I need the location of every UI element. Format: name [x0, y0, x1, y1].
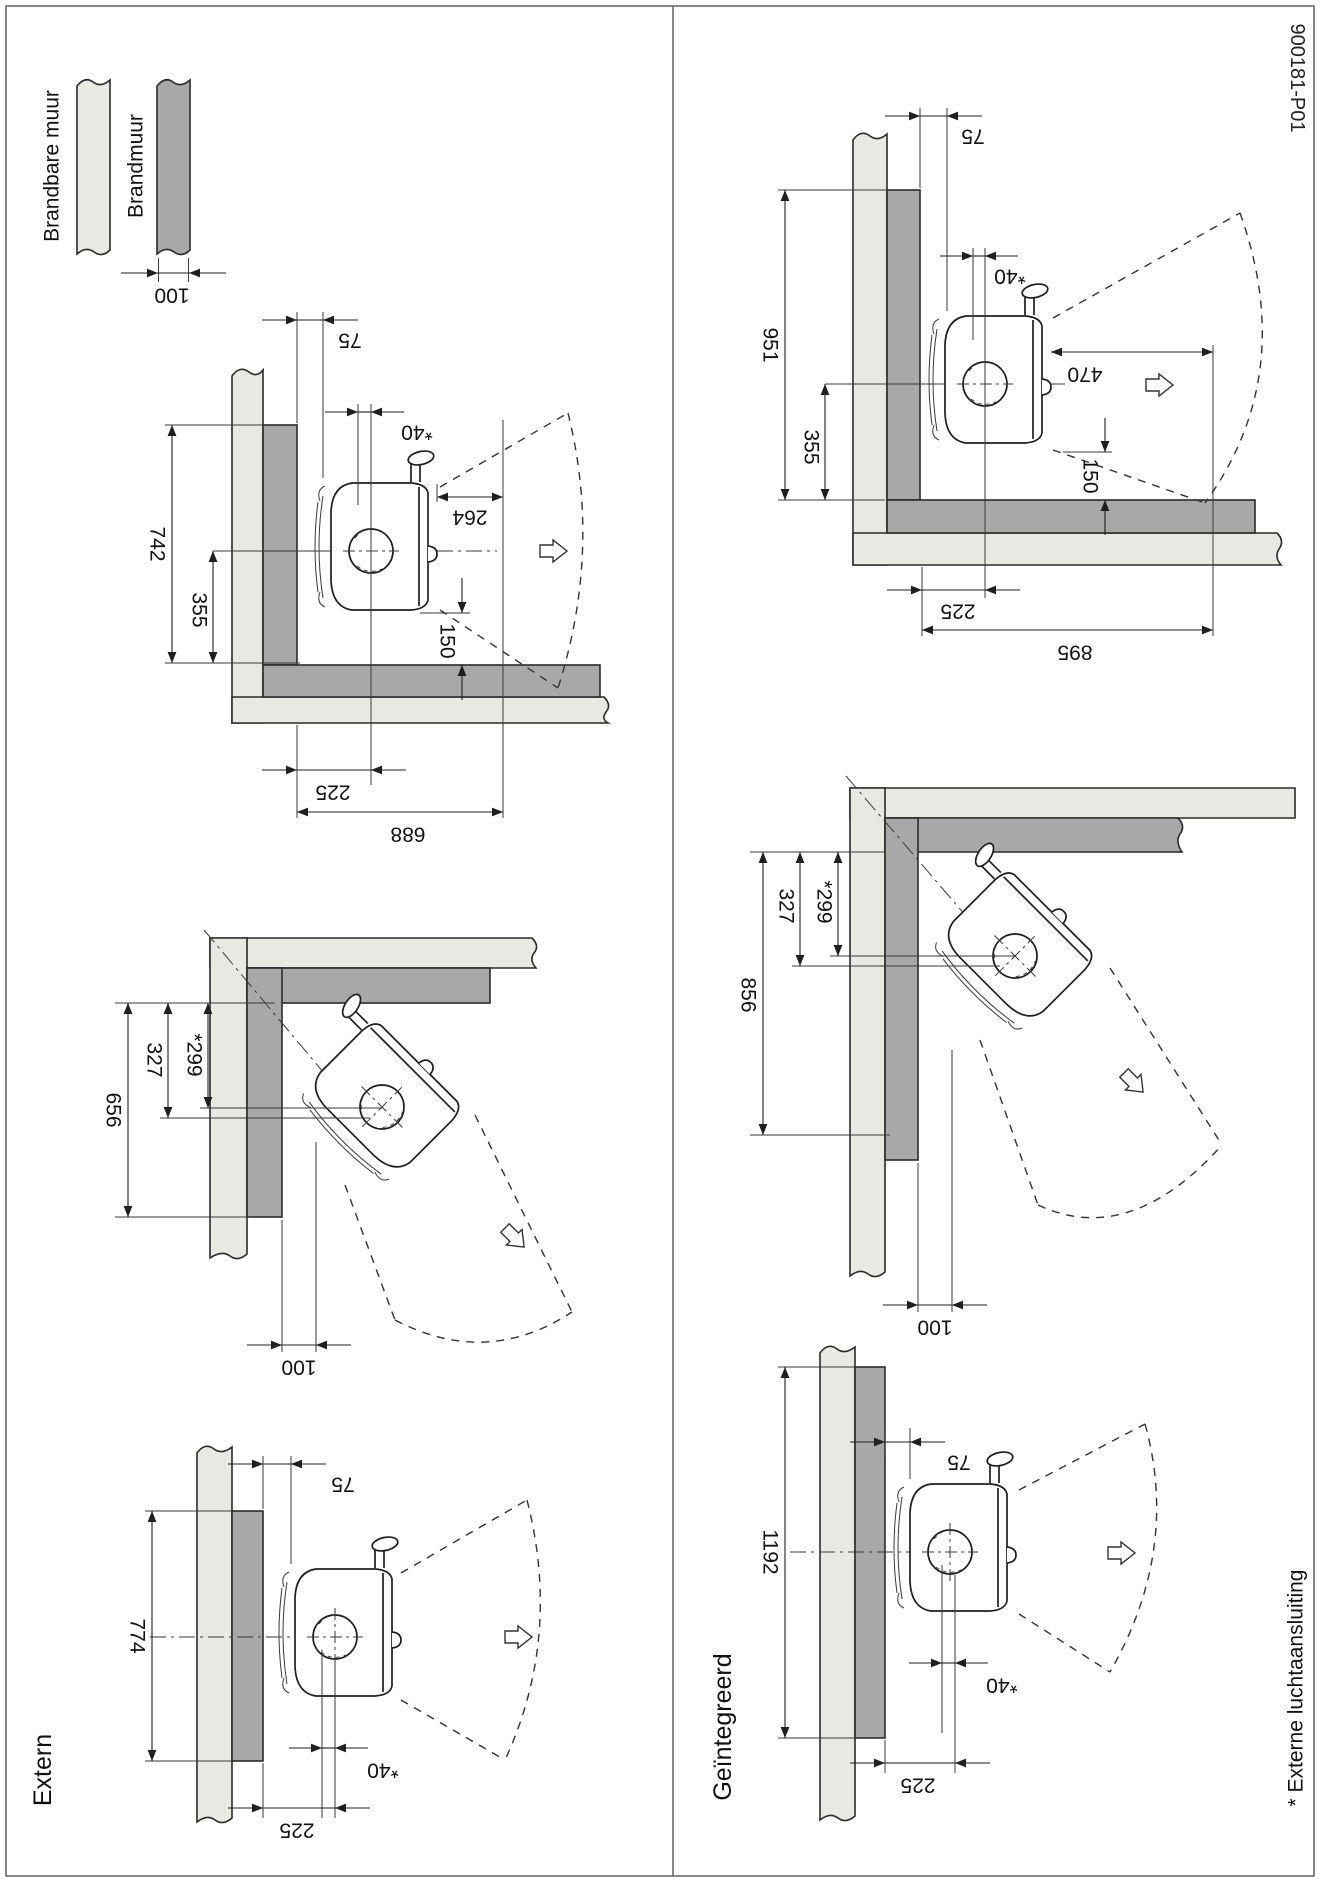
stove-top-view: [315, 449, 437, 610]
dim-height-center: 355: [800, 429, 823, 464]
dim-bottom-clearance: 150: [436, 623, 459, 658]
dim-firewall-height: 1192: [759, 1529, 782, 1574]
diagram-geintegreerd-diagonal: 856 327 *299 100: [737, 776, 1296, 1339]
radiation-direction-arrow-icon: [1108, 1542, 1135, 1564]
dim-wall-gap: 100: [281, 1356, 316, 1379]
stove-top-view: [903, 837, 1103, 1037]
combustible-wall: [850, 788, 1295, 818]
combustible-wall: [853, 533, 1282, 565]
combustible-wall: [232, 697, 609, 723]
diagram-geintegreerd-flat: 1192 75 *40 225: [759, 1346, 1157, 1820]
dim-flue-offset: *40: [367, 1759, 399, 1782]
dim-depth-upper: 327: [143, 1042, 166, 1077]
combustible-wall: [210, 938, 537, 968]
firewall: [885, 818, 1183, 852]
dim-side-distance: 225: [315, 781, 350, 804]
firewall: [885, 818, 918, 1160]
dim-depth-upper: 327: [775, 888, 798, 923]
dim-flue-offset: *40: [401, 421, 433, 444]
dim-depth-inner: *299: [183, 1033, 206, 1076]
dim-wall-gap: 100: [917, 1316, 952, 1339]
firewall: [263, 425, 297, 665]
firewall: [247, 968, 282, 1217]
combustible-wall: [232, 369, 263, 723]
radiation-direction-arrow-icon: [505, 1626, 532, 1648]
dim-flue-offset: *40: [986, 1674, 1018, 1697]
footnote-external-air: * Externe luchtaansluiting: [1285, 1570, 1308, 1807]
dim-back-clearance: 75: [338, 329, 361, 352]
combustible-wall: [820, 1346, 855, 1820]
dim-depth-total: 856: [737, 977, 760, 1012]
diagram-extern-corner: 742 355 75 *40 264 150 225 688: [146, 312, 609, 846]
diagram-geintegreerd-corner: 951 355 75 *40 470 150 225 895: [759, 108, 1282, 664]
combustible-wall: [850, 788, 885, 1277]
dim-back-clearance: 75: [947, 1451, 970, 1474]
firewall: [887, 190, 920, 500]
dim-side-distance: 225: [900, 1774, 935, 1797]
dim-depth-inner: *299: [813, 880, 836, 923]
dim-side-distance: 225: [279, 1819, 314, 1842]
legend-thickness-dim: 100: [154, 284, 189, 307]
drawing-number: 900181-P01: [1286, 24, 1308, 133]
legend-firewall-swatch: [157, 80, 190, 255]
legend-firewall-label: Brandmuur: [125, 114, 148, 218]
legend-combustible-wall-swatch: [77, 80, 110, 255]
legend-combustible-label: Brandbare muur: [41, 90, 64, 242]
dim-height-total: 951: [759, 327, 782, 362]
dim-depth-total: 656: [102, 1092, 125, 1127]
installation-drawing: Brandbare muur Brandmuur 100 742 355 75: [0, 0, 1320, 1882]
dim-height-center: 355: [188, 592, 211, 627]
column-label-extern: Extern: [29, 1734, 57, 1806]
firewall: [263, 665, 600, 697]
combustible-wall: [197, 1446, 232, 1822]
dim-front-clearance: 470: [1067, 363, 1102, 386]
combustible-wall: [210, 938, 247, 1259]
dim-side-distance: 225: [940, 600, 975, 623]
drawing-page: Brandbare muur Brandmuur 100 742 355 75: [0, 0, 1320, 1882]
dim-bottom-clearance: 150: [1079, 458, 1102, 493]
radiation-direction-arrow-icon: [497, 1220, 532, 1255]
firewall: [247, 968, 490, 1003]
firewall: [887, 500, 1255, 533]
radiation-direction-arrow-icon: [540, 540, 567, 562]
dim-height-total: 742: [146, 526, 169, 561]
dim-width-total: 895: [1057, 641, 1092, 664]
dim-front-clearance: 264: [452, 506, 487, 529]
diagram-extern-flat: 774 75 *40 225: [126, 1446, 541, 1841]
dim-back-clearance: 75: [331, 1473, 354, 1496]
column-label-geintegreerd: Geïntegreerd: [709, 1653, 737, 1800]
legend: Brandbare muur Brandmuur 100: [41, 80, 227, 307]
radiation-direction-arrow-icon: [1146, 374, 1173, 396]
stove-top-view: [279, 1535, 401, 1696]
radiation-direction-arrow-icon: [1116, 1065, 1151, 1100]
dim-back-clearance: 75: [961, 125, 984, 148]
dim-flue-offset: *40: [994, 265, 1026, 288]
diagram-extern-diagonal: 656 327 *299 100: [102, 930, 573, 1379]
dim-width-total: 688: [390, 823, 425, 846]
firewall: [232, 1511, 263, 1761]
dim-firewall-height: 774: [126, 1618, 149, 1653]
stove-top-view: [270, 988, 470, 1188]
